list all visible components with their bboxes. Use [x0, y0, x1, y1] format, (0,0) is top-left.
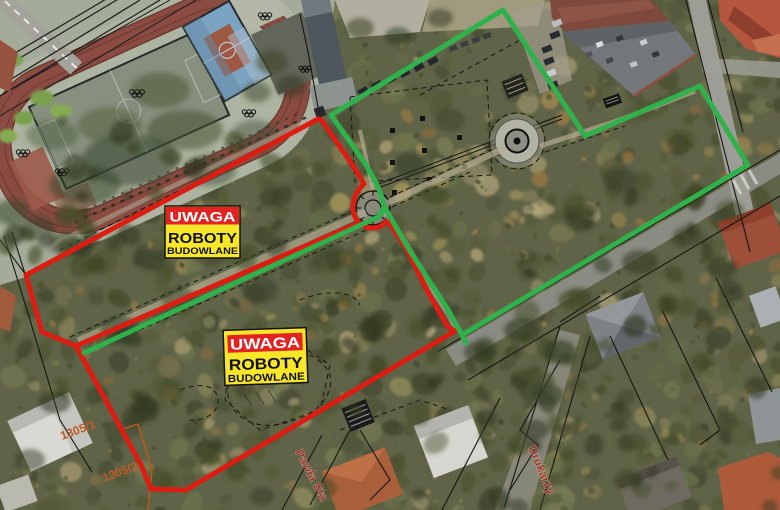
svg-text:UWAGA: UWAGA — [170, 209, 236, 225]
svg-text:ROBOTY: ROBOTY — [168, 231, 237, 247]
svg-text:BUDOWLANE: BUDOWLANE — [167, 246, 238, 257]
svg-text:UWAGA: UWAGA — [230, 334, 301, 353]
